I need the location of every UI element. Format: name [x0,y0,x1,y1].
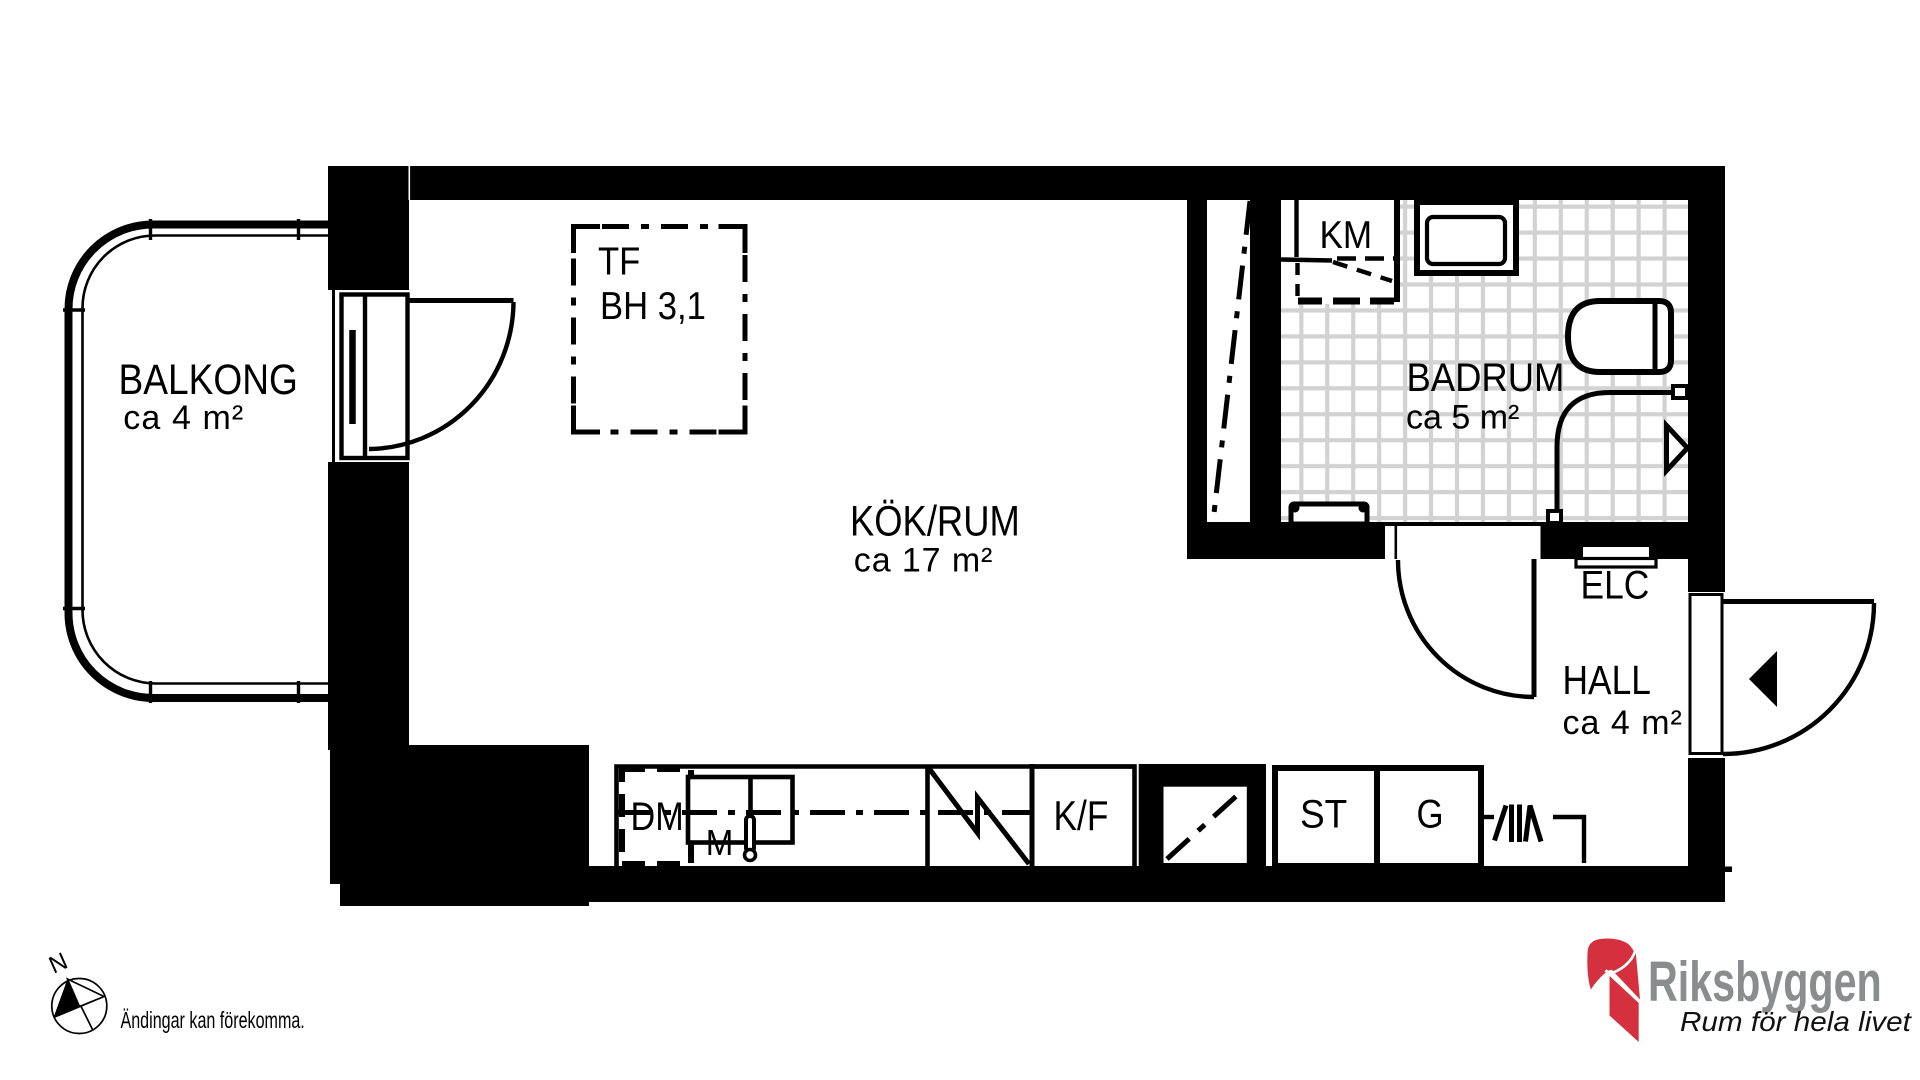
svg-text:HALL: HALL [1563,658,1651,704]
svg-text:BALKONG: BALKONG [119,357,298,404]
svg-text:ELC: ELC [1581,564,1650,608]
svg-text:K/F: K/F [1054,793,1109,840]
svg-text:TF: TF [598,240,640,283]
svg-text:ca 4 m²: ca 4 m² [1563,704,1683,742]
svg-text:Riksbyggen: Riksbyggen [1648,951,1882,1014]
svg-text:ca 5 m²: ca 5 m² [1406,399,1519,437]
svg-text:DM: DM [631,793,684,838]
svg-text:BADRUM: BADRUM [1407,357,1565,401]
svg-text:ca 4 m²: ca 4 m² [123,399,244,437]
svg-text:KM: KM [1320,212,1373,256]
svg-text:M: M [706,824,734,864]
svg-text:ca 17 m²: ca 17 m² [854,541,993,579]
svg-text:G: G [1417,791,1444,836]
svg-text:Rum för hela livet: Rum för hela livet [1680,1007,1913,1038]
svg-text:Ändingar kan förekomma.: Ändingar kan förekomma. [121,1008,305,1033]
svg-text:BH 3,1: BH 3,1 [600,285,706,328]
svg-text:ST: ST [1300,792,1347,837]
svg-text:KÖK/RUM: KÖK/RUM [850,498,1020,545]
